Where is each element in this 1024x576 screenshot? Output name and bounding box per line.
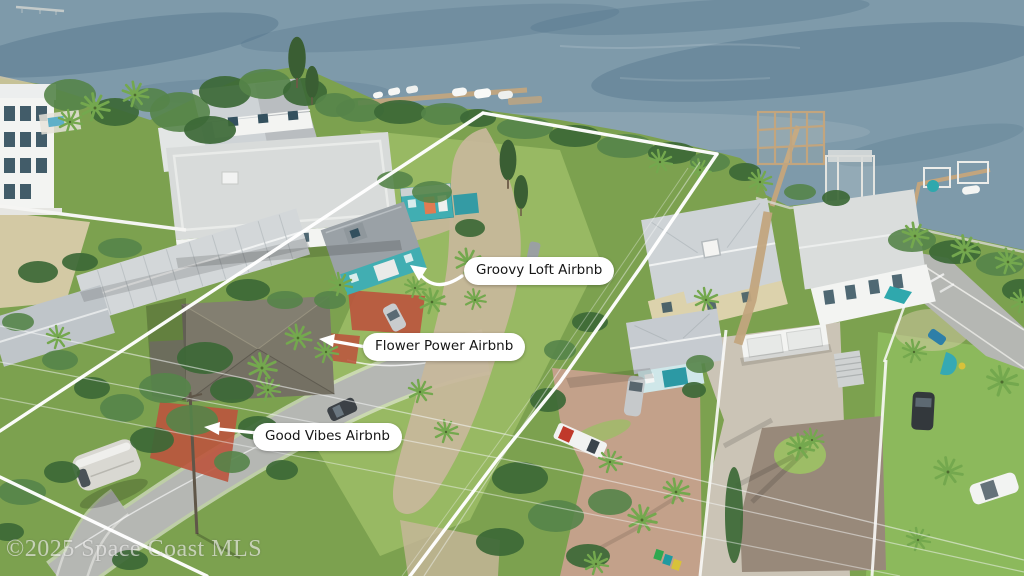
dock-umbrella — [927, 180, 939, 192]
label-groovy-loft: Groovy Loft Airbnb — [464, 257, 614, 285]
aerial-scene — [0, 0, 1024, 576]
dark-suv-lawn — [911, 391, 935, 430]
mls-watermark: ©2025 Space Coast MLS — [6, 536, 262, 563]
teal-shed-2 — [453, 193, 479, 215]
boat-lift-a — [758, 112, 824, 164]
aerial-photo: Groovy Loft Airbnb Flower Power Airbnb G… — [0, 0, 1024, 576]
entry-stairs — [834, 350, 864, 387]
cupola — [702, 239, 721, 258]
label-flower-power: Flower Power Airbnb — [363, 333, 525, 361]
skylight — [222, 172, 238, 184]
label-good-vibes: Good Vibes Airbnb — [253, 423, 402, 451]
